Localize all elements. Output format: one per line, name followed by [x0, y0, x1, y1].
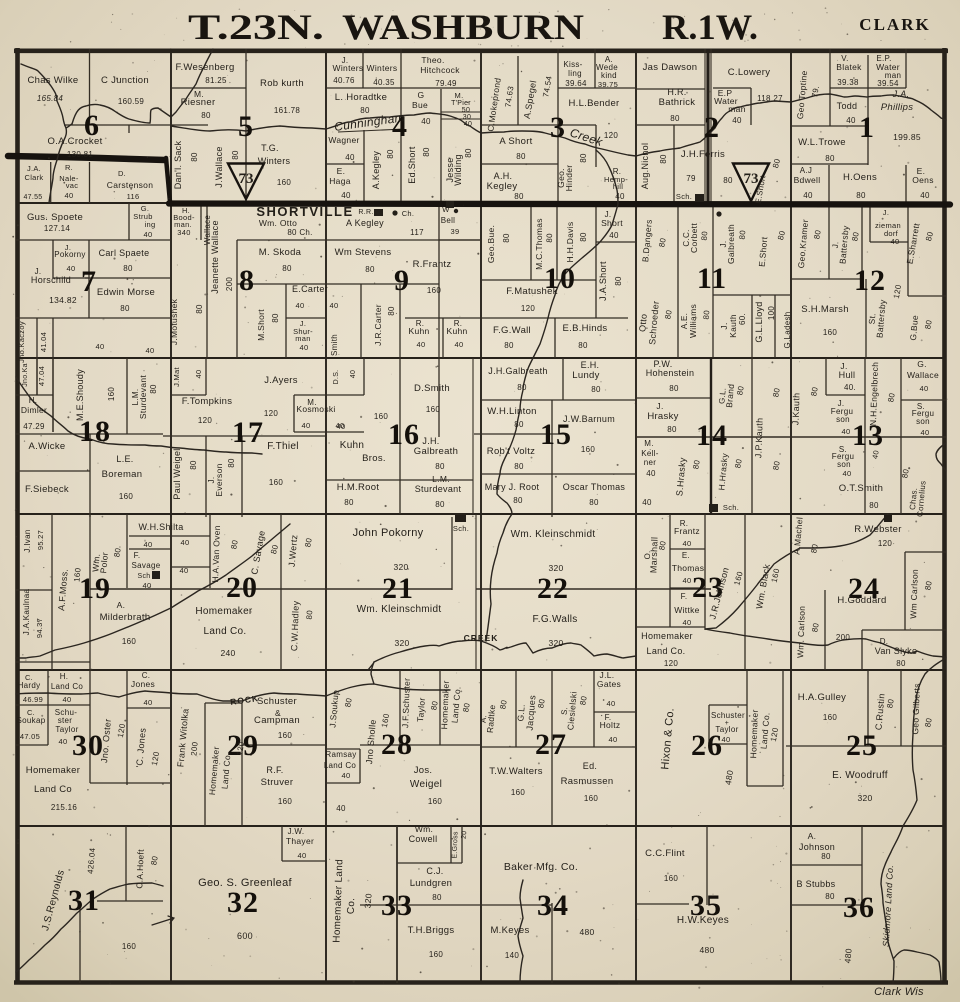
svg-text:Lundgren: Lundgren [410, 878, 453, 889]
svg-text:Short: Short [601, 218, 623, 228]
svg-text:M. Skoda: M. Skoda [259, 247, 302, 258]
svg-text:Gates: Gates [597, 679, 621, 689]
svg-text:80: 80 [691, 459, 702, 470]
svg-text:80: 80 [670, 114, 680, 123]
svg-text:Struver: Struver [261, 777, 294, 788]
svg-text:40: 40 [96, 342, 105, 351]
svg-text:80: 80 [517, 383, 527, 392]
svg-text:79: 79 [686, 174, 696, 183]
svg-text:Boreman: Boreman [102, 469, 143, 480]
svg-text:160: 160 [426, 405, 440, 414]
svg-text:160: 160 [428, 797, 442, 806]
svg-text:Kell-: Kell- [641, 449, 659, 458]
svg-text:80: 80 [702, 309, 712, 319]
svg-text:80: 80 [461, 702, 472, 713]
svg-text:T.G.: T.G. [261, 143, 279, 153]
svg-text:127.14: 127.14 [44, 224, 71, 233]
svg-text:200: 200 [836, 633, 850, 642]
svg-text:40: 40 [846, 116, 856, 125]
svg-text:Horschild: Horschild [31, 275, 71, 285]
svg-text:A Kegley: A Kegley [346, 218, 384, 228]
svg-text:Wallace: Wallace [907, 370, 939, 380]
svg-text:G.Ladesh: G.Ladesh [783, 311, 792, 348]
svg-text:80: 80 [149, 855, 160, 866]
svg-text:E.Carter: E.Carter [292, 284, 328, 294]
svg-text:Johnson: Johnson [799, 842, 835, 852]
svg-text:E. Woodruff: E. Woodruff [832, 770, 888, 781]
svg-text:E.Gross: E.Gross [452, 831, 460, 859]
svg-text:H.M.Root: H.M.Root [337, 482, 380, 493]
svg-text:28: 28 [381, 728, 413, 761]
svg-text:140: 140 [505, 951, 519, 960]
svg-text:Kuhn: Kuhn [408, 326, 429, 336]
svg-text:J.Ivan: J.Ivan [23, 529, 32, 552]
svg-text:A.Wicke: A.Wicke [29, 441, 66, 452]
svg-text:46.99: 46.99 [23, 695, 43, 704]
svg-text:80: 80 [856, 191, 866, 200]
svg-text:F.Matushek: F.Matushek [506, 286, 558, 297]
svg-text:Ch.: Ch. [402, 209, 415, 218]
svg-text:80: 80 [591, 385, 601, 394]
svg-text:118 27: 118 27 [757, 94, 783, 103]
svg-text:320: 320 [394, 638, 409, 648]
svg-text:WASHBURN: WASHBURN [342, 7, 584, 47]
svg-text:SHORTVILLE: SHORTVILLE [256, 204, 353, 219]
svg-text:130.81: 130.81 [67, 150, 94, 159]
svg-text:Geo Gilberts: Geo Gilberts [910, 683, 922, 735]
svg-text:O.T.Smith: O.T.Smith [839, 483, 883, 494]
svg-text:H.H.Davis: H.H.Davis [565, 222, 575, 263]
svg-text:Land Co: Land Co [51, 682, 84, 691]
svg-text:40: 40 [337, 422, 346, 431]
svg-text:M.: M. [455, 91, 464, 100]
svg-text:79.49: 79.49 [435, 79, 457, 88]
svg-text:Sch: Sch [138, 573, 151, 580]
svg-text:Taylor: Taylor [55, 725, 78, 734]
svg-text:160: 160 [584, 794, 598, 803]
svg-text:80: 80 [723, 176, 733, 185]
svg-text:320: 320 [362, 893, 373, 909]
svg-text:80: 80 [821, 852, 831, 861]
svg-text:Bathrick: Bathrick [659, 97, 696, 108]
svg-text:39.54: 39.54 [877, 79, 899, 88]
svg-text:80: 80 [738, 229, 748, 239]
svg-text:M.C.Thomas: M.C.Thomas [534, 218, 544, 270]
svg-text:80: 80 [502, 233, 511, 243]
svg-text:80: 80 [545, 233, 554, 243]
svg-text:40: 40 [350, 370, 357, 378]
svg-text:J.W.Barnum: J.W.Barnum [563, 414, 615, 424]
svg-text:9: 9 [394, 264, 410, 297]
svg-text:160: 160 [581, 445, 595, 454]
svg-text:50: 50 [462, 107, 470, 114]
svg-text:G: G [418, 90, 425, 100]
svg-text:80: 80 [513, 496, 523, 505]
svg-text:Carl Spaete: Carl Spaete [99, 248, 150, 258]
svg-text:120: 120 [521, 304, 535, 313]
svg-text:320: 320 [548, 563, 563, 573]
svg-text:Milderbrath: Milderbrath [100, 612, 151, 623]
svg-text:H.L.Bender: H.L.Bender [568, 98, 619, 109]
svg-text:H.W.Keyes: H.W.Keyes [677, 915, 729, 926]
svg-text:80: 80 [271, 313, 280, 323]
svg-text:39.64: 39.64 [565, 79, 587, 88]
svg-text:H.R.: H.R. [667, 87, 686, 97]
svg-text:H.: H. [29, 396, 38, 405]
svg-text:W.L.Trowe: W.L.Trowe [798, 137, 846, 148]
svg-text:40: 40 [65, 191, 74, 200]
svg-text:200: 200 [225, 277, 234, 291]
svg-text:T.H.Briggs: T.H.Briggs [408, 925, 455, 936]
svg-text:L.M.: L.M. [432, 474, 450, 484]
svg-text:Mary J. Root: Mary J. Root [485, 482, 540, 492]
svg-text:160: 160 [374, 412, 388, 421]
svg-text:kind: kind [601, 71, 617, 80]
svg-text:Land Co.: Land Co. [204, 626, 247, 637]
svg-text:Sturdevant: Sturdevant [138, 375, 148, 419]
svg-text:80: 80 [700, 230, 710, 240]
svg-text:Geo. S. Greenleaf: Geo. S. Greenleaf [198, 877, 292, 889]
svg-text:J.A.Short: J.A.Short [598, 261, 608, 301]
svg-text:40: 40 [144, 698, 153, 707]
svg-text:Van Slyke: Van Slyke [875, 646, 918, 656]
svg-text:100: 100 [767, 306, 776, 320]
svg-text:40.: 40. [844, 383, 856, 392]
svg-text:J.Motushek: J.Motushek [169, 298, 179, 345]
svg-text:Haga: Haga [329, 176, 351, 186]
svg-text:Brand: Brand [724, 383, 736, 408]
svg-text:32: 32 [227, 886, 259, 919]
svg-text:Schuster: Schuster [257, 696, 297, 707]
svg-text:40: 40 [891, 237, 900, 246]
svg-text:40: 40 [144, 230, 153, 239]
svg-text:C.A.Hoeft: C.A.Hoeft [134, 849, 145, 889]
svg-text:20: 20 [461, 830, 469, 839]
svg-text:Wm Stevens: Wm Stevens [335, 247, 392, 258]
svg-text:Galbreath: Galbreath [726, 224, 736, 264]
svg-text:80: 80 [435, 462, 445, 471]
svg-text:Weigel: Weigel [410, 779, 442, 790]
svg-text:80: 80 [614, 276, 623, 286]
svg-text:Wm Carlson: Wm Carlson [908, 569, 920, 619]
svg-text:C Junction: C Junction [101, 75, 149, 86]
svg-text:Wagner: Wagner [328, 135, 359, 145]
svg-text:160: 160 [823, 328, 837, 337]
svg-text:ster: ster [58, 716, 73, 725]
svg-text:40: 40 [296, 301, 305, 310]
svg-text:Jones: Jones [131, 679, 155, 689]
svg-text:Hohenstein: Hohenstein [646, 368, 695, 378]
svg-text:14: 14 [696, 419, 728, 452]
svg-text:40.35: 40.35 [373, 78, 395, 87]
svg-text:47.05: 47.05 [20, 732, 40, 741]
svg-text:27: 27 [535, 728, 567, 761]
svg-text:Pokorny: Pokorny [54, 250, 85, 259]
svg-text:Sch.: Sch. [723, 503, 739, 512]
svg-text:40: 40 [330, 301, 339, 310]
svg-text:Chas Wilke: Chas Wilke [27, 75, 78, 86]
svg-text:R.F.: R.F. [266, 765, 283, 775]
svg-text:M.Short: M.Short [256, 309, 266, 341]
svg-text:Gus. Spoete: Gus. Spoete [27, 212, 83, 223]
svg-text:Wilding: Wilding [453, 154, 463, 186]
svg-text:80: 80 [201, 111, 211, 120]
svg-text:80: 80 [344, 498, 354, 507]
svg-text:W.H.Shilta: W.H.Shilta [138, 522, 183, 532]
svg-text:J.A.Kaulnaa: J.A.Kaulnaa [22, 589, 31, 636]
svg-text:ling: ling [568, 69, 582, 78]
svg-text:Clark Wis: Clark Wis [874, 986, 924, 998]
svg-text:W.H.Linton: W.H.Linton [487, 406, 536, 417]
svg-text:40: 40 [143, 581, 152, 590]
svg-text:F.G.Wall: F.G.Wall [493, 325, 531, 336]
svg-text:40: 40 [298, 851, 307, 860]
svg-text:41.04: 41.04 [39, 332, 48, 352]
svg-text:ing: ing [145, 220, 156, 229]
svg-text:Thomas: Thomas [672, 563, 705, 573]
svg-text:8: 8 [239, 264, 255, 297]
svg-text:Edwin Morse: Edwin Morse [97, 287, 155, 298]
svg-text:Corbett: Corbett [689, 223, 699, 253]
svg-text:son: son [836, 415, 850, 424]
svg-text:160: 160 [277, 178, 291, 187]
svg-text:R.: R. [65, 163, 73, 172]
svg-text:A Short: A Short [499, 136, 532, 147]
svg-text:son: son [837, 460, 851, 469]
svg-text:Jno.Ka: Jno.Ka [22, 363, 29, 387]
svg-text:40.76: 40.76 [333, 76, 355, 85]
svg-text:Land Co.: Land Co. [647, 646, 686, 656]
svg-text:J.Mat: J.Mat [172, 366, 181, 386]
svg-text:J.Kauth: J.Kauth [790, 392, 801, 425]
svg-text:480: 480 [842, 948, 853, 964]
svg-text:M.: M. [644, 439, 654, 448]
svg-text:40: 40 [683, 576, 692, 585]
svg-text:165.84: 165.84 [37, 94, 64, 103]
svg-text:80: 80 [360, 106, 370, 115]
svg-text:Wm. Carlson: Wm. Carlson [795, 606, 807, 659]
svg-text:40: 40 [341, 191, 351, 200]
svg-text:80: 80 [923, 319, 934, 330]
svg-text:80 Ch.: 80 Ch. [287, 228, 312, 237]
svg-text:47.29: 47.29 [23, 422, 45, 431]
svg-text:F.Wesenberg: F.Wesenberg [175, 62, 234, 73]
svg-text:J.F.Schuster: J.F.Schuster [400, 678, 412, 729]
svg-text:80: 80 [850, 231, 861, 242]
svg-text:40: 40 [642, 498, 652, 507]
svg-text:22: 22 [537, 572, 569, 605]
svg-text:160: 160 [122, 637, 136, 646]
svg-text:Oens: Oens [912, 175, 934, 185]
svg-text:80: 80 [771, 460, 782, 471]
svg-text:F.Tompkins: F.Tompkins [182, 396, 233, 407]
svg-text:Winters: Winters [333, 63, 364, 73]
svg-text:O.A.Crocket: O.A.Crocket [47, 136, 102, 147]
svg-text:40: 40 [146, 346, 155, 355]
svg-text:CREEK: CREEK [464, 633, 499, 643]
svg-text:80: 80 [809, 386, 820, 397]
svg-text:Baker Mfg. Co.: Baker Mfg. Co. [504, 861, 578, 873]
svg-text:39.75: 39.75 [598, 80, 618, 89]
svg-text:ner: ner [644, 458, 656, 467]
svg-text:40: 40 [609, 735, 618, 744]
svg-text:A.Kegley: A.Kegley [371, 151, 381, 190]
svg-text:80: 80 [120, 304, 130, 313]
svg-text:A.J: A.J [800, 166, 812, 175]
svg-text:man: man [295, 334, 311, 343]
svg-text:Riesner: Riesner [181, 97, 216, 108]
svg-text:Theo.: Theo. [421, 55, 444, 65]
svg-text:40: 40 [67, 264, 76, 273]
svg-text:J.Ayers: J.Ayers [264, 375, 298, 386]
svg-text:Jas Dawson: Jas Dawson [643, 62, 698, 73]
svg-text:Kiss-: Kiss- [563, 60, 582, 69]
svg-text:80: 80 [189, 460, 198, 470]
svg-text:40: 40 [417, 340, 426, 349]
svg-text:80: 80 [190, 152, 199, 162]
svg-text:80: 80 [869, 501, 879, 510]
svg-text:Hitchcock: Hitchcock [420, 65, 460, 75]
svg-text:80: 80 [810, 622, 821, 633]
svg-text:40: 40 [683, 539, 692, 548]
svg-text:80: 80 [579, 153, 588, 163]
svg-text:480: 480 [579, 927, 594, 937]
svg-text:120: 120 [604, 131, 618, 140]
svg-text:40: 40 [300, 343, 309, 352]
svg-text:40: 40 [683, 618, 692, 627]
svg-text:80: 80 [825, 892, 835, 901]
svg-text:17: 17 [232, 416, 264, 449]
svg-text:80: 80 [825, 154, 835, 163]
svg-text:73: 73 [239, 171, 254, 187]
svg-text:F.Siebeck: F.Siebeck [25, 484, 69, 495]
svg-text:D.Smith: D.Smith [414, 383, 450, 394]
svg-text:Geo.Bue.: Geo.Bue. [486, 225, 496, 263]
svg-text:Bdwell: Bdwell [794, 175, 821, 185]
svg-text:160: 160 [269, 478, 283, 487]
svg-text:80: 80 [343, 697, 354, 708]
svg-text:40: 40 [455, 340, 464, 349]
svg-text:F.: F. [681, 592, 688, 601]
svg-text:40: 40 [180, 566, 189, 575]
svg-text:80: 80 [900, 468, 911, 479]
svg-text:40: 40 [336, 804, 346, 813]
svg-text:E.: E. [682, 551, 690, 560]
svg-text:Sch.: Sch. [676, 192, 692, 201]
svg-text:J.H.Ferris: J.H.Ferris [681, 149, 725, 160]
svg-text:5: 5 [238, 110, 254, 143]
svg-text:80: 80 [112, 547, 123, 558]
svg-text:E.: E. [337, 166, 346, 176]
svg-text:80: 80 [386, 149, 395, 159]
svg-text:Otto: Otto [637, 313, 649, 332]
svg-text:160: 160 [107, 387, 116, 401]
svg-text:81.25: 81.25 [205, 76, 227, 85]
svg-text:Sch.: Sch. [453, 524, 469, 533]
svg-text:40: 40 [722, 735, 731, 744]
svg-text:30: 30 [463, 114, 471, 121]
svg-text:80: 80 [578, 695, 589, 706]
svg-text:Ramsay: Ramsay [325, 750, 356, 759]
svg-text:40: 40 [646, 469, 656, 478]
svg-text:240: 240 [220, 648, 235, 658]
svg-text:120: 120 [264, 409, 278, 418]
svg-text:F.: F. [134, 551, 141, 560]
svg-text:Wm. Kleinschmidt: Wm. Kleinschmidt [511, 529, 596, 540]
svg-text:320: 320 [548, 638, 563, 648]
svg-text:C.C.Flint: C.C.Flint [645, 848, 685, 859]
svg-text:Bros.: Bros. [362, 453, 386, 464]
svg-text:H.A.Van Oven: H.A.Van Oven [210, 525, 222, 583]
svg-text:Kuhn: Kuhn [340, 440, 365, 451]
svg-text:E.B.Hinds: E.B.Hinds [563, 323, 608, 334]
svg-text:320: 320 [393, 562, 408, 572]
svg-text:160: 160 [429, 950, 443, 959]
svg-text:80: 80 [579, 232, 588, 242]
svg-text:40: 40 [144, 540, 153, 549]
svg-text:Bell: Bell [441, 216, 456, 225]
svg-text:215.16: 215.16 [51, 803, 78, 812]
svg-text:hill: hill [613, 182, 623, 191]
svg-text:134.82: 134.82 [49, 295, 77, 305]
svg-text:Homemaker: Homemaker [26, 765, 80, 776]
svg-text:A.: A. [808, 831, 817, 841]
svg-text:36: 36 [843, 891, 875, 924]
svg-text:40: 40 [920, 191, 930, 200]
svg-text:40: 40 [803, 191, 813, 200]
svg-text:Winters: Winters [367, 63, 398, 73]
svg-text:199.85: 199.85 [893, 132, 921, 142]
svg-text:80: 80 [663, 309, 674, 320]
svg-text:12: 12 [854, 264, 886, 297]
svg-text:Ed.: Ed. [583, 761, 597, 771]
svg-text:160: 160 [427, 286, 441, 295]
svg-text:W: W [442, 205, 450, 214]
svg-text:S.H.Marsh: S.H.Marsh [801, 304, 849, 315]
svg-text:33: 33 [381, 889, 413, 922]
svg-text:Rob't Voltz: Rob't Voltz [487, 446, 535, 457]
svg-text:160: 160 [119, 492, 133, 501]
svg-text:Todd: Todd [837, 101, 858, 111]
svg-text:80: 80 [886, 392, 897, 403]
svg-text:Lundy: Lundy [572, 370, 599, 381]
svg-text:R.1W.: R.1W. [662, 7, 758, 47]
svg-text:40: 40 [342, 771, 351, 780]
svg-text:Polor: Polor [98, 552, 110, 574]
svg-text:3: 3 [550, 111, 566, 144]
svg-text:C.W.Hadley: C.W.Hadley [289, 600, 301, 651]
svg-text:Thayer: Thayer [286, 836, 314, 846]
svg-text:Bue: Bue [412, 100, 428, 110]
svg-text:40: 40 [607, 699, 616, 708]
svg-text:160: 160 [122, 942, 136, 951]
svg-text:C.Lowery: C.Lowery [728, 67, 771, 78]
svg-text:L.E.: L.E. [116, 454, 133, 464]
svg-text:Jno.Kaczoy: Jno.Kaczoy [17, 321, 26, 363]
svg-text:80: 80 [464, 148, 473, 158]
svg-text:Williams: Williams [688, 304, 698, 338]
svg-text:40: 40 [842, 427, 851, 436]
svg-text:A.H.: A.H. [494, 171, 513, 181]
svg-text:Wittke: Wittke [674, 605, 699, 615]
svg-text:Oscar Thomas: Oscar Thomas [563, 482, 626, 492]
svg-text:600: 600 [237, 931, 253, 941]
svg-text:80: 80 [231, 150, 240, 160]
svg-text:F.Thiel: F.Thiel [267, 441, 299, 452]
svg-text:Phillips: Phillips [881, 102, 914, 113]
svg-text:80: 80 [435, 500, 445, 509]
svg-text:40: 40 [59, 737, 68, 746]
